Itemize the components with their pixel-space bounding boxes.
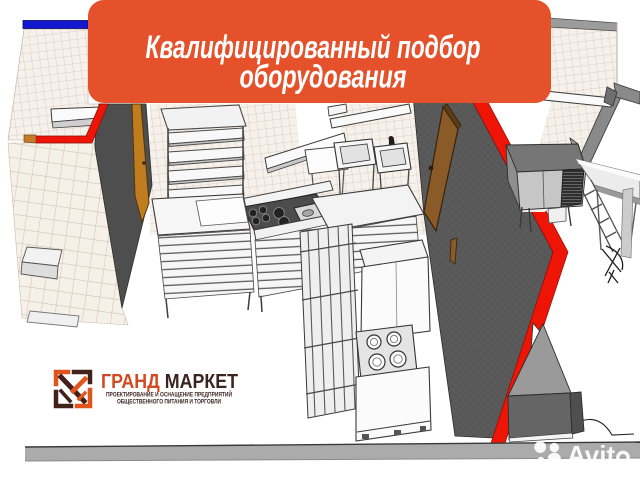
svg-text:оборудования: оборудования	[240, 59, 407, 95]
svg-text:Avit: Avit	[567, 440, 615, 470]
svg-text:ГРАНД МАРКЕТ: ГРАНД МАРКЕТ	[101, 371, 238, 393]
svg-text:ПРОЕКТИРОВАНИЕ И ОСНАЩЕНИЕ ПРЕ: ПРОЕКТИРОВАНИЕ И ОСНАЩЕНИЕ ПРЕДПРИЯТИЙ	[106, 391, 232, 399]
svg-text:ОБЩЕСТВЕННОГО ПИТАНИЯ И ТОРГОВ: ОБЩЕСТВЕННОГО ПИТАНИЯ И ТОРГОВЛИ	[117, 399, 221, 406]
